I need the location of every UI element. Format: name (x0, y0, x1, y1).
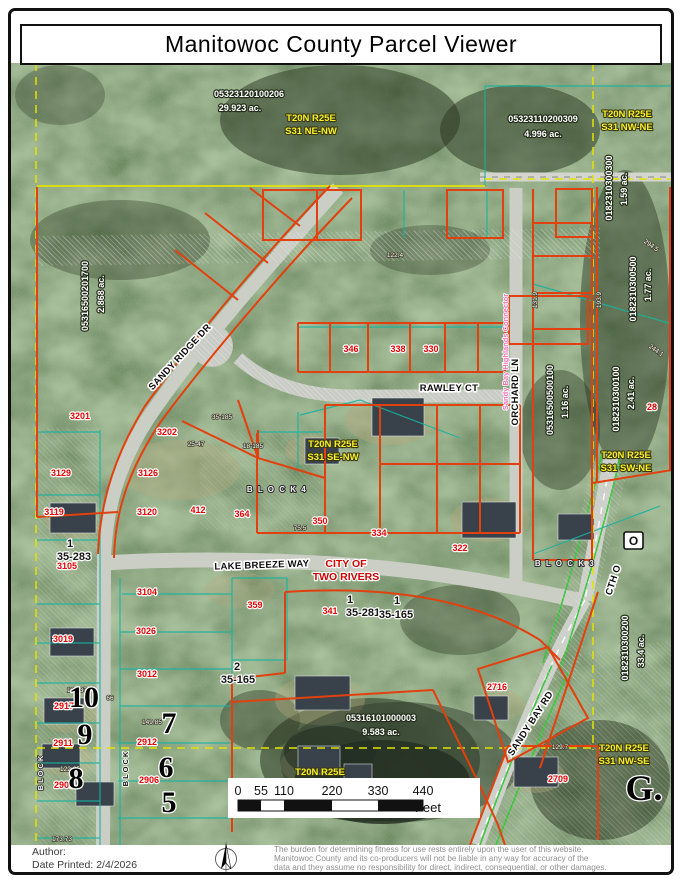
map-svg: O 0532312010020629.923 ac.05323110200309… (10, 63, 672, 845)
address-label: 2911 (53, 738, 73, 748)
block-label: 6 (159, 751, 174, 784)
dimension-label: 193.9 (596, 291, 603, 308)
parcel-id-label: 2.41 ac. (626, 377, 636, 410)
scale-tick-label: 55 (254, 784, 268, 798)
scale-tick-label: 440 (413, 784, 434, 798)
highway-shield-label: O (629, 534, 638, 548)
disclaimer-line: Manitowoc County and its co-producers wi… (274, 854, 666, 863)
scale-tick-label: 110 (274, 784, 294, 798)
address-label: 2912 (137, 737, 157, 747)
city-label: CITY OF (325, 558, 367, 570)
address-label: 346 (343, 344, 358, 354)
dimension-label: 35-185 (212, 414, 233, 421)
plat-label: 1 (394, 595, 400, 607)
parcel-viewer-page: Manitowoc County Parcel Viewer (0, 0, 682, 883)
street-name-label: RAWLEY CT (420, 383, 478, 394)
plss-label: S31 SW-NE (600, 463, 651, 474)
parcel-id-label: 1.59 ac. (619, 173, 629, 206)
parcel-id-label: 0182310300300 (604, 155, 614, 220)
dimension-label: 131.9 (532, 291, 539, 308)
address-label: 3129 (51, 468, 71, 478)
dimension-label: 75.5 (294, 525, 307, 532)
address-label: 3119 (44, 507, 64, 517)
plat-label: 35-283 (57, 551, 91, 563)
block-label: 8 (69, 762, 84, 795)
address-label: 3012 (137, 669, 157, 679)
plat-label: 35-281 (346, 607, 380, 619)
date-printed-label: Date Printed: 2/4/2026 (32, 859, 137, 872)
connector-label: Sandy Bay Highlands Connector (501, 294, 510, 410)
address-label: 412 (190, 505, 205, 515)
scale-tick-label: 0 (235, 784, 242, 798)
address-label: 3026 (136, 626, 156, 636)
plat-label: 35-165 (379, 609, 413, 621)
dimension-label: 129.7 (552, 744, 569, 751)
parcel-id-label: 0182310300100 (611, 366, 621, 431)
scale-tick-label: Feet (415, 800, 441, 815)
author-label: Author: (32, 846, 137, 859)
footer-disclaimer: The burden for determining fitness for u… (274, 845, 666, 872)
address-label: 338 (390, 344, 405, 354)
footer-author-block: Author: Date Printed: 2/4/2026 (32, 846, 137, 872)
block-label: G. (625, 768, 662, 808)
plss-label: T20N R25E (286, 113, 336, 124)
plat-label: 2 (234, 661, 240, 673)
address-label: 2716 (487, 682, 507, 692)
parcel-id-label: 0182310300500 (628, 256, 638, 321)
plss-label: S31 NE-NW (285, 126, 337, 137)
connector-label: Sandy Bay Highlands Connector (501, 294, 510, 410)
plss-label: S31 NW-SE (598, 756, 649, 767)
parcel-id-label: 33.4 ac. (636, 635, 646, 668)
parcel-id-label: 1.16 ac. (560, 386, 570, 419)
block-label: 9 (78, 718, 93, 751)
dimension-label: 149.85 (142, 719, 162, 726)
block-label: BLOCK (36, 754, 45, 791)
title-box: Manitowoc County Parcel Viewer (20, 24, 662, 65)
address-label: 322 (452, 543, 467, 553)
block-label: 5 (162, 786, 177, 819)
plat-label: 1 (347, 594, 353, 606)
parcel-id-label: 9.583 ac. (362, 727, 400, 737)
dimension-label: 25-47 (188, 441, 205, 448)
block-label: BLOCK (121, 750, 130, 787)
street-name-label: ORCHARD LN (510, 359, 521, 426)
plat-label: 1 (67, 538, 73, 550)
address-label: 2906 (139, 775, 159, 785)
address-label: 28 (647, 402, 657, 412)
parcel-id-label: 2.868 ac. (96, 275, 106, 313)
parcel-id-label: 05316500500100 (545, 365, 555, 435)
plss-label: S31 NW-NE (601, 122, 653, 133)
parcel-id-label: 05316101000003 (346, 713, 416, 723)
address-label: 350 (312, 516, 327, 526)
scale-tick-label: 330 (368, 784, 389, 798)
plss-label: T20N R25E (295, 767, 345, 778)
scale-tick-label: 220 (322, 784, 343, 798)
address-label: 330 (423, 344, 438, 354)
address-label: 334 (371, 528, 386, 538)
plat-label: 35-165 (221, 674, 255, 686)
page-title: Manitowoc County Parcel Viewer (165, 31, 517, 58)
address-label: 359 (247, 600, 262, 610)
parcel-id-label: 29.923 ac. (219, 103, 262, 113)
map-canvas[interactable]: O 0532312010020629.923 ac.05323110200309… (10, 63, 672, 845)
dimension-label: 66 (106, 695, 114, 702)
dimension-label: 18-185 (243, 443, 264, 450)
plss-label: T20N R25E (308, 439, 358, 450)
address-label: 3120 (137, 507, 157, 517)
address-label: 3202 (157, 427, 177, 437)
address-label: 3019 (53, 634, 73, 644)
dimension-label: 173.73 (52, 836, 72, 843)
block-label: 7 (162, 707, 177, 740)
dimension-label: 122.4 (387, 252, 404, 259)
parcel-id-label: 0182310300200 (620, 615, 630, 680)
address-label: 364 (234, 509, 249, 519)
block-label: B L O C K 4 (247, 485, 307, 494)
block-label: 10 (69, 681, 99, 714)
city-label: TWO RIVERS (313, 571, 380, 583)
disclaimer-line: data and they assume no responsibility f… (274, 863, 666, 872)
address-label: 2709 (548, 774, 568, 784)
parcel-id-label: 05323110200309 (508, 114, 578, 124)
disclaimer-line: The burden for determining fitness for u… (274, 845, 666, 854)
address-label: 341 (322, 606, 337, 616)
plss-label: T20N R25E (601, 450, 651, 461)
parcel-id-label: 1.77 ac. (643, 269, 653, 302)
plss-label: S31 SE-NW (307, 452, 358, 463)
parcel-id-label: 4.996 ac. (524, 129, 562, 139)
highway-shield-O: O (624, 532, 643, 549)
address-label: 3104 (137, 587, 157, 597)
plss-label: T20N R25E (599, 743, 649, 754)
parcel-id-label: 05323120100206 (214, 89, 284, 99)
parcel-id-label: 05316500201700 (80, 261, 90, 331)
address-label: 3201 (70, 411, 90, 421)
block-label: B L O C K 3 (535, 559, 595, 568)
north-arrow (206, 841, 246, 875)
footer: Author: Date Printed: 2/4/2026 The burde… (10, 845, 672, 873)
plss-label: T20N R25E (602, 109, 652, 120)
address-label: 3126 (138, 468, 158, 478)
